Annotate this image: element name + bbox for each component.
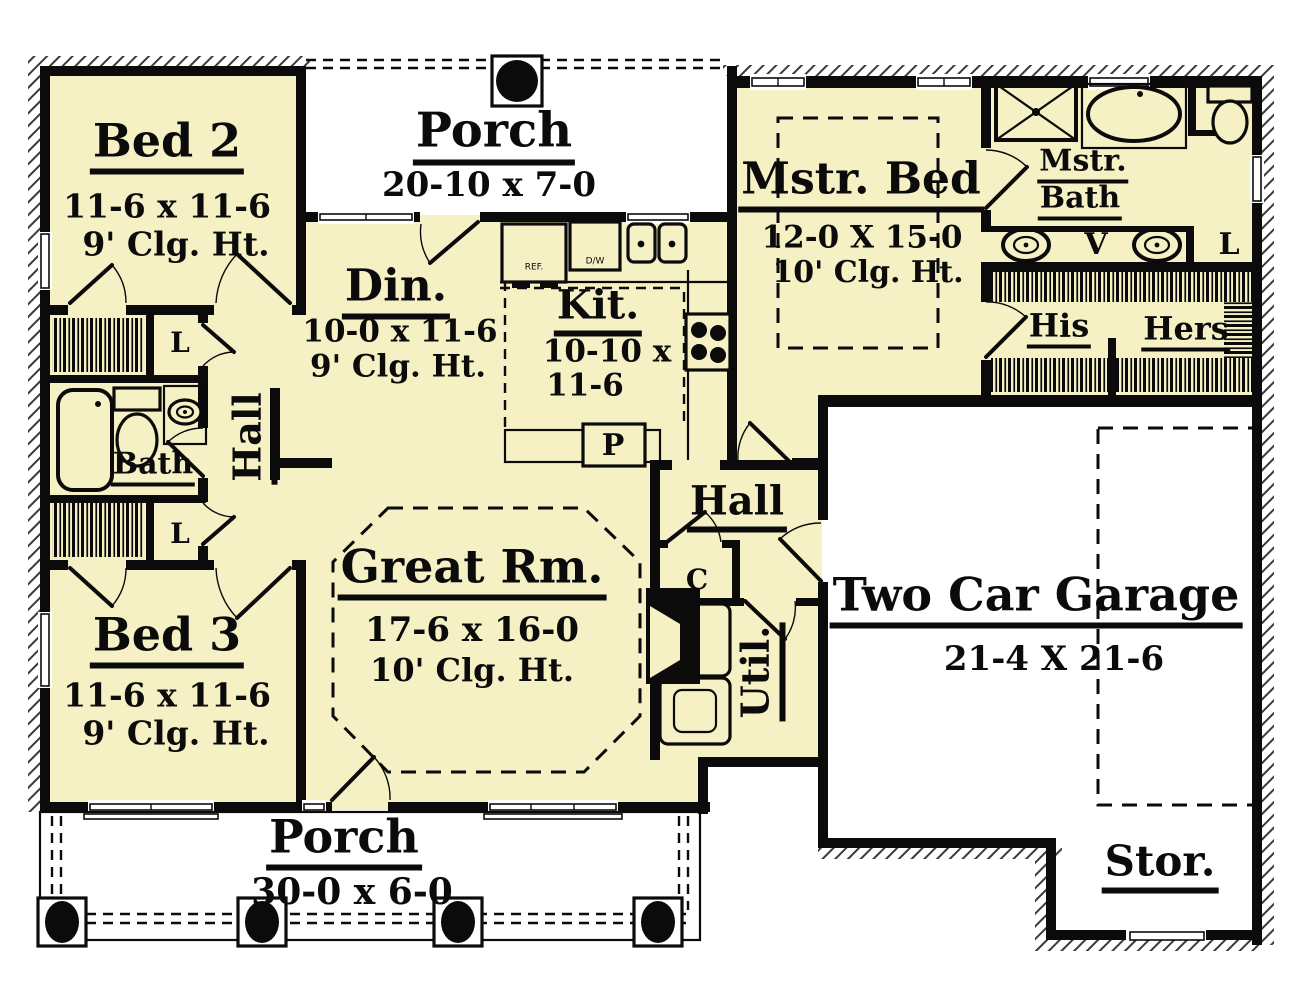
window xyxy=(84,800,218,819)
porch-top-structure xyxy=(492,56,542,106)
fireplace-icon xyxy=(646,588,700,684)
refrigerator-icon xyxy=(502,224,566,288)
kit-name: Kit. xyxy=(554,286,642,337)
vanity-label: V xyxy=(1084,230,1107,260)
din-ceiling: 9' Clg. Ht. xyxy=(310,352,486,383)
window xyxy=(484,800,622,819)
din-dims: 10-0 x 11-6 xyxy=(302,317,497,348)
bed3-ceiling: 9' Clg. Ht. xyxy=(82,717,269,750)
linen-master-label: L xyxy=(1218,230,1239,260)
linen-top-label: L xyxy=(170,329,190,357)
window xyxy=(626,210,690,224)
garage-name: Two Car Garage xyxy=(830,572,1243,629)
floor-plan: .wl{fill:#0b0b0b} .tn{fill:none;stroke:#… xyxy=(0,0,1300,1005)
window xyxy=(916,74,972,90)
bath-name: Bath xyxy=(111,450,195,487)
kit-dims-1: 10-10 x xyxy=(543,337,671,368)
linen-bottom-label: L xyxy=(170,520,190,548)
fridge-label: REF. xyxy=(525,264,544,273)
coat-closet-label: C xyxy=(686,566,708,594)
porch-bottom-dims: 30-0 x 6-0 xyxy=(251,874,453,910)
great-room-name: Great Rm. xyxy=(338,544,607,601)
window xyxy=(318,210,414,224)
pantry-label: P xyxy=(602,431,625,461)
bed3-name: Bed 3 xyxy=(90,612,244,669)
kit-dims-2: 11-6 xyxy=(546,371,624,402)
mstr-bed-name: Mstr. Bed xyxy=(738,158,984,213)
porch-column-icon xyxy=(38,898,86,946)
porch-top-name: Porch xyxy=(413,107,575,166)
bed2-name: Bed 2 xyxy=(90,118,244,175)
stor-door-threshold xyxy=(1130,932,1204,940)
util-name: Util. xyxy=(737,623,786,722)
window xyxy=(750,74,806,90)
hers-closet-label: Hers xyxy=(1141,313,1230,352)
din-name: Din. xyxy=(342,265,450,320)
great-room-dims: 17-6 x 16-0 xyxy=(365,613,579,647)
hall-right-name: Hall xyxy=(687,482,787,533)
porch-bottom-name: Porch xyxy=(266,814,422,871)
great-room-ceiling: 10' Clg. Ht. xyxy=(370,654,574,686)
mstr-bath-name-2: Bath xyxy=(1038,184,1122,221)
toilet-icon xyxy=(1208,86,1252,143)
his-closet-label: His xyxy=(1027,310,1091,349)
porch-column-icon xyxy=(634,898,682,946)
mstr-bed-ceiling: 10' Clg. Ht. xyxy=(772,258,963,288)
range-icon xyxy=(686,314,730,370)
window xyxy=(38,612,52,688)
porch-column-icon xyxy=(492,56,542,106)
hall-left-name: Hall xyxy=(229,389,278,484)
mstr-bath-name-1: Mstr. xyxy=(1037,147,1128,184)
bed2-dims: 11-6 x 11-6 xyxy=(63,190,271,223)
garage-dims: 21-4 X 21-6 xyxy=(944,642,1164,676)
mstr-bed-dims: 12-0 X 15-0 xyxy=(762,223,963,254)
stor-name: Stor. xyxy=(1102,841,1219,894)
window xyxy=(1250,155,1264,203)
dishwasher-label: D/W xyxy=(586,258,605,267)
bed2-ceiling: 9' Clg. Ht. xyxy=(82,228,269,261)
bed3-dims: 11-6 x 11-6 xyxy=(63,679,271,712)
porch-top-dims: 20-10 x 7-0 xyxy=(382,168,596,202)
window xyxy=(38,232,52,290)
